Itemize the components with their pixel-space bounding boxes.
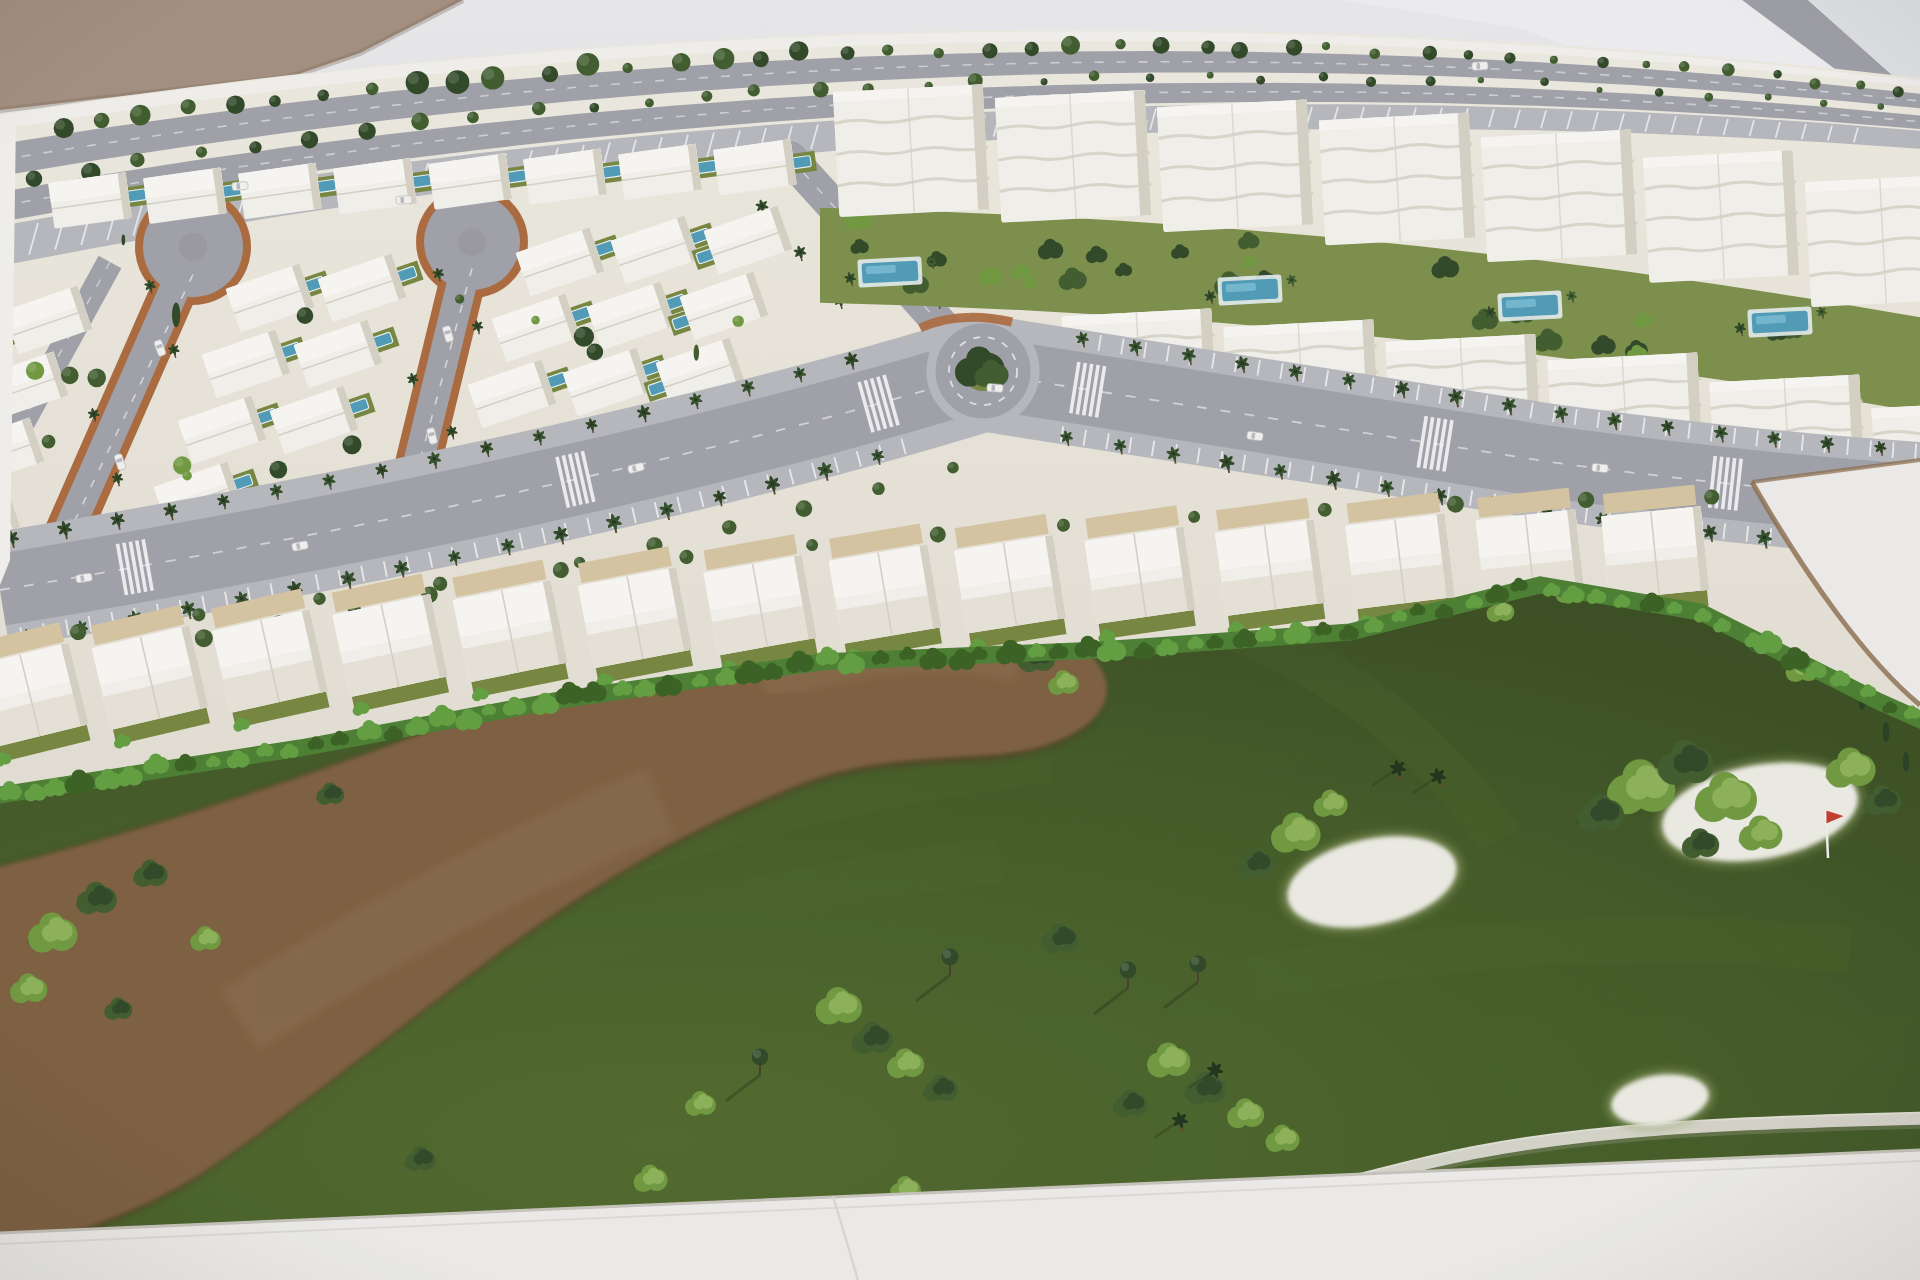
photo-vignette [0,0,1920,1280]
model-scene [0,0,1920,1280]
architectural-model-photo [0,0,1920,1280]
